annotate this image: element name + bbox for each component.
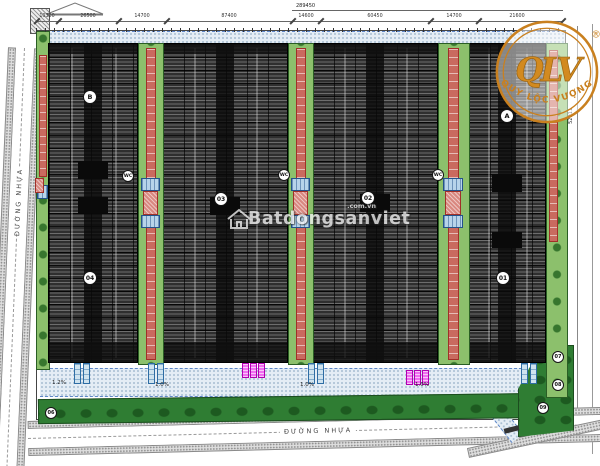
site-item-06: 06 <box>45 407 57 419</box>
building-label-text: 02 <box>364 195 372 202</box>
site-item-text: 08 <box>555 382 562 388</box>
internal-road-bottom <box>40 368 542 397</box>
building-end-dark <box>313 44 437 54</box>
building-label-text: 01 <box>499 275 507 282</box>
slope-label: 1.0% <box>415 382 429 388</box>
logo-monogram: QLV <box>515 51 584 89</box>
dim-segment-value: 60450 <box>358 14 392 19</box>
building-label-01: 01 <box>496 271 510 285</box>
building-label-02: 02 <box>361 191 375 205</box>
parking-stalls <box>74 363 90 384</box>
left-road-label: ĐƯỜNG NHỰA <box>13 168 24 237</box>
building-label-03: 03 <box>214 192 228 206</box>
building-label-04: 04 <box>83 271 97 285</box>
red-canopy-left-edge <box>39 55 47 177</box>
building-label-text: 03 <box>217 196 225 203</box>
roof-joint-line <box>256 48 258 358</box>
bottom-road-label: ĐƯỜNG NHỰA <box>280 426 356 436</box>
slope-label: 1.2% <box>52 380 66 386</box>
site-item-text: 09 <box>540 405 547 411</box>
building-label-text: 04 <box>86 275 94 282</box>
site-item-07: 07 <box>552 351 564 363</box>
dimension-overall-value: 289450 <box>296 3 315 9</box>
site-item-09: 09 <box>537 402 549 414</box>
wc-label-text: WC <box>280 173 288 178</box>
parking-stalls <box>521 363 537 384</box>
dim-segment-value: 26500 <box>71 14 105 19</box>
parking-stalls <box>308 363 324 384</box>
pump-room <box>293 191 308 215</box>
wc-label: WC <box>432 169 444 181</box>
pump-room <box>143 191 158 215</box>
logo-registered-mark: ® <box>591 30 600 41</box>
gate-marker-left <box>35 178 44 193</box>
dim-segment-value: 14700 <box>125 14 159 19</box>
wc-block <box>291 215 310 228</box>
building-connector <box>492 232 522 248</box>
roof-joint-line <box>406 48 408 358</box>
qlv-logo-stamp: QLV QUY LỘC VƯỢNG ® <box>486 16 600 126</box>
building-connector <box>78 161 108 179</box>
dim-segment-value: 14700 <box>437 14 471 19</box>
roof-joint-line <box>194 48 196 358</box>
site-item-text: 06 <box>48 410 55 416</box>
wc-label-text: WC <box>434 173 442 178</box>
roof-joint-line <box>344 48 346 358</box>
roof-joint-line <box>71 48 73 358</box>
wc-block <box>443 215 463 228</box>
gatehouse-markers <box>242 363 265 378</box>
dim-segment-value: 10300 <box>30 14 64 19</box>
building-end-dark <box>163 342 287 362</box>
dim-segment-value: 14600 <box>289 14 323 19</box>
building-label-b: B <box>83 90 97 104</box>
dimension-line-overall <box>292 10 563 11</box>
slope-label: 1.0% <box>300 382 314 388</box>
wc-label: WC <box>278 169 290 181</box>
parking-stalls <box>148 363 164 384</box>
wc-block <box>443 178 463 191</box>
site-plan-canvas: 289450 10300 26500 14700 87400 14600 604… <box>0 0 600 466</box>
wc-label: WC <box>122 170 134 182</box>
wc-block <box>291 178 310 191</box>
building-connector <box>78 197 108 213</box>
dim-segment-value: 87400 <box>212 14 246 19</box>
building-end-dark <box>49 342 137 362</box>
wc-block <box>141 178 160 191</box>
building-label-text: B <box>88 93 93 101</box>
site-item-text: 07 <box>555 354 562 360</box>
building-end-dark <box>49 44 137 54</box>
wc-block <box>141 215 160 228</box>
building-end-dark <box>313 342 437 362</box>
roof-joint-line <box>115 48 117 358</box>
building-connector <box>492 174 522 192</box>
building-end-dark <box>163 44 287 54</box>
building-end-dark <box>469 342 545 362</box>
pump-room <box>445 191 461 215</box>
site-item-08: 08 <box>552 379 564 391</box>
wc-label-text: WC <box>124 174 132 179</box>
slope-label: 1.0% <box>155 382 169 388</box>
warehouse-block-02 <box>312 43 438 363</box>
